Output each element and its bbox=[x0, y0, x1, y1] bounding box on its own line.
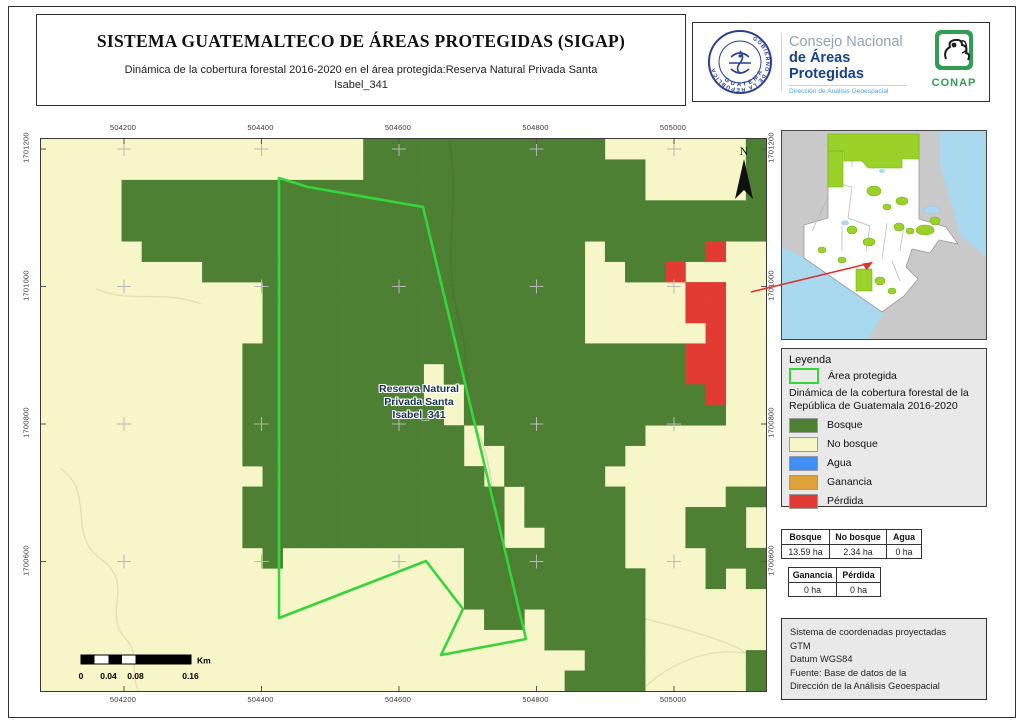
org-subunit: Dirección de Análisis Geoespacial bbox=[789, 85, 907, 95]
legend-item-agua: Agua bbox=[789, 456, 986, 470]
no-bosque-label: No bosque bbox=[827, 438, 878, 450]
stat-value-bosque: 13.59 ha bbox=[782, 545, 830, 559]
conap-monkey-icon bbox=[934, 29, 974, 71]
bosque-swatch bbox=[789, 418, 818, 433]
info-line-1: Sistema de coordenadas proyectadas bbox=[790, 626, 986, 640]
agua-label: Agua bbox=[827, 457, 852, 469]
svg-text:0.08: 0.08 bbox=[127, 671, 144, 681]
no-bosque-swatch bbox=[789, 437, 818, 452]
svg-text:0: 0 bbox=[79, 671, 84, 681]
info-line-2: GTM bbox=[790, 640, 986, 654]
info-line-4: Fuente: Base de datos de la bbox=[790, 667, 986, 681]
perdida-swatch bbox=[789, 494, 818, 509]
info-line-3: Datum WGS84 bbox=[790, 653, 986, 667]
guatemala-inset-map bbox=[781, 130, 987, 340]
header-box: SISTEMA GUATEMALTECO DE ÁREAS PROTEGIDAS… bbox=[36, 14, 686, 106]
org-name-line1: Consejo Nacional bbox=[789, 35, 919, 50]
projection-info-box: Sistema de coordenadas proyectadas GTM D… bbox=[781, 618, 987, 700]
info-line-5: Dirección de la Análisis Geoespacial bbox=[790, 680, 986, 694]
svg-text:0.16: 0.16 bbox=[182, 671, 199, 681]
ganancia-label: Ganancia bbox=[827, 476, 872, 488]
conap-wordmark: Consejo Nacional de Áreas Protegidas Dir… bbox=[789, 35, 919, 95]
bosque-label: Bosque bbox=[827, 419, 863, 431]
conap-logo: CONAP bbox=[925, 29, 983, 89]
page: SISTEMA GUATEMALTECO DE ÁREAS PROTEGIDAS… bbox=[0, 0, 1024, 724]
area-label-line1: Reserva Natural bbox=[319, 383, 519, 396]
logos-box: GOBIERNO DE LA REPÚBLICA GUATEMALA Conse… bbox=[692, 22, 990, 102]
page-title: SISTEMA GUATEMALTECO DE ÁREAS PROTEGIDAS… bbox=[37, 31, 685, 52]
stat-header-no-bosque: No bosque bbox=[830, 530, 887, 545]
stat-header-perdida: Pérdida bbox=[837, 568, 881, 583]
change-stats-table: Ganancia Pérdida 0 ha 0 ha bbox=[788, 567, 881, 597]
legend-item-area-protegida: Área protegida bbox=[789, 368, 986, 384]
legend: Leyenda Área protegida Dinámica de la co… bbox=[781, 348, 987, 507]
stat-header-agua: Agua bbox=[887, 530, 922, 545]
main-map: N Km00.040.080.16 Reserva Natural Privad… bbox=[40, 138, 767, 692]
stat-value-ganancia: 0 ha bbox=[789, 583, 837, 597]
agua-swatch bbox=[789, 456, 818, 471]
government-seal-icon: GOBIERNO DE LA REPÚBLICA GUATEMALA bbox=[707, 29, 773, 95]
conap-label: CONAP bbox=[925, 77, 983, 89]
svg-text:Km: Km bbox=[197, 656, 211, 666]
svg-text:N: N bbox=[740, 144, 749, 158]
svg-text:0.04: 0.04 bbox=[100, 671, 117, 681]
stat-value-perdida: 0 ha bbox=[837, 583, 881, 597]
ganancia-swatch bbox=[789, 475, 818, 490]
lake-izabal bbox=[924, 206, 940, 214]
perdida-label: Pérdida bbox=[827, 495, 863, 507]
area-label-line3: Isabel_341 bbox=[319, 409, 519, 422]
logos-divider bbox=[781, 33, 782, 91]
map-subtitle-line1: Dinámica de la cobertura forestal 2016-2… bbox=[37, 64, 685, 76]
area-protegida-swatch bbox=[789, 368, 819, 384]
legend-subtitle-line2: República de Guatemala 2016-2020 bbox=[789, 400, 986, 413]
org-name-line2: de Áreas Protegidas bbox=[789, 50, 919, 82]
area-protegida-label: Área protegida bbox=[828, 370, 897, 382]
stat-header-ganancia: Ganancia bbox=[789, 568, 837, 583]
area-label-line2: Privada Santa bbox=[319, 396, 519, 409]
protected-area-label: Reserva Natural Privada Santa Isabel_341 bbox=[319, 383, 519, 422]
stat-value-agua: 0 ha bbox=[887, 545, 922, 559]
map-subtitle-line2: Isabel_341 bbox=[37, 79, 685, 91]
stat-value-no-bosque: 2.34 ha bbox=[830, 545, 887, 559]
legend-item-perdida: Pérdida bbox=[789, 494, 986, 508]
legend-item-no-bosque: No bosque bbox=[789, 437, 986, 451]
legend-item-ganancia: Ganancia bbox=[789, 475, 986, 489]
legend-item-bosque: Bosque bbox=[789, 418, 986, 432]
area-stats-table: Bosque No bosque Agua 13.59 ha 2.34 ha 0… bbox=[781, 529, 922, 559]
stat-header-bosque: Bosque bbox=[782, 530, 830, 545]
legend-title: Leyenda bbox=[789, 354, 986, 366]
legend-subtitle-line1: Dinámica de la cobertura forestal de la bbox=[789, 387, 986, 400]
